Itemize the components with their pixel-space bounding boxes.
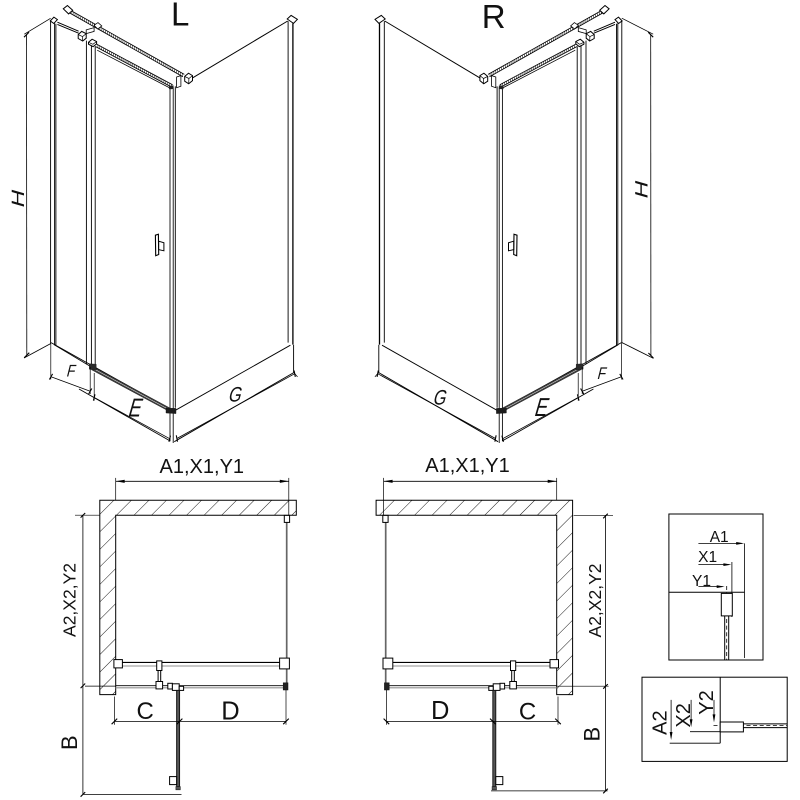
svg-text:B: B (579, 727, 604, 742)
svg-text:D: D (221, 697, 239, 725)
svg-text:C: C (519, 699, 536, 726)
svg-text:A1,X1,Y1: A1,X1,Y1 (160, 456, 245, 478)
svg-text:R: R (482, 0, 506, 35)
svg-text:D: D (431, 697, 449, 725)
svg-text:A1: A1 (710, 529, 729, 546)
svg-text:X2: X2 (673, 703, 695, 727)
svg-text:C: C (137, 698, 154, 725)
svg-text:Y2: Y2 (696, 690, 718, 714)
svg-text:B: B (57, 735, 82, 750)
svg-text:A2,X2,Y2: A2,X2,Y2 (585, 564, 605, 638)
svg-text:X1: X1 (698, 549, 717, 566)
svg-text:A2: A2 (650, 710, 672, 734)
svg-text:L: L (171, 0, 189, 33)
svg-text:A2,X2,Y2: A2,X2,Y2 (59, 563, 79, 637)
svg-text:A1,X1,Y1: A1,X1,Y1 (425, 455, 510, 477)
svg-text:Y1: Y1 (692, 573, 711, 590)
